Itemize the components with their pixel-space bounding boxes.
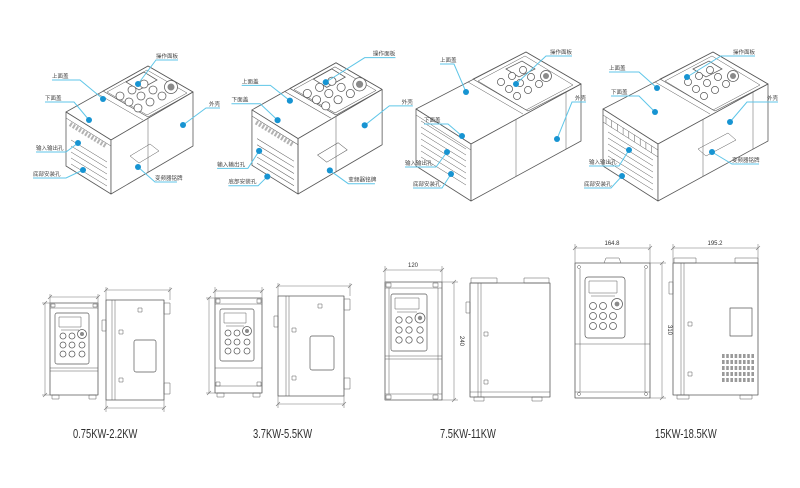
dimension-group-4: 164.8 310 195.2 bbox=[560, 232, 780, 407]
callout-label-top-cover: 上面盖 bbox=[52, 72, 69, 80]
callout-label-mount-holes: 底部安装孔 bbox=[413, 180, 441, 188]
callout-dot bbox=[75, 140, 81, 146]
callout-dot bbox=[256, 148, 262, 154]
side-view bbox=[102, 300, 170, 400]
callout-label-panel: 操作面板 bbox=[550, 48, 573, 56]
callout-dot bbox=[180, 122, 186, 128]
front-view bbox=[215, 298, 262, 397]
callout-dot bbox=[513, 81, 519, 87]
callout-dot bbox=[619, 173, 625, 179]
dimension-group-2 bbox=[198, 272, 363, 427]
callout-dot bbox=[327, 167, 333, 173]
callout-label-shell: 外壳 bbox=[767, 94, 779, 102]
callout-label-bottom-cover: 下面盖 bbox=[424, 116, 441, 124]
power-range-label-1: 0.75KW-2.2KW bbox=[73, 426, 137, 441]
callout-dot bbox=[80, 167, 86, 173]
front-view bbox=[50, 303, 98, 399]
dimension-text-front-width: 164.8 bbox=[604, 241, 620, 247]
dimension-text-front-height: 310 bbox=[666, 325, 672, 336]
isometric-view-4: 操作面板 上面盖 下面盖 外壳 变频器铭牌 输入输出孔 bbox=[583, 24, 788, 224]
callout-label-top-cover: 上面盖 bbox=[242, 77, 259, 85]
side-view bbox=[466, 278, 550, 401]
isometric-view-3: 上面盖 操作面板 下面盖 外壳 输入输出孔 底部安装孔 bbox=[396, 24, 601, 224]
device-body bbox=[603, 52, 768, 201]
callout-dot bbox=[287, 98, 293, 104]
power-range-label-4: 15KW-18.5KW bbox=[655, 426, 717, 441]
callout-dot bbox=[444, 149, 450, 155]
isometric-view-2: 操作面板 上面盖 下面盖 外壳 输入输出孔 底部安装孔 bbox=[213, 36, 418, 231]
callout-dot bbox=[684, 74, 690, 80]
callout-label-nameplate: 变频器铭牌 bbox=[348, 176, 377, 184]
callout-dot bbox=[86, 117, 92, 123]
callout-dot bbox=[135, 164, 141, 170]
callout-label-panel: 操作面板 bbox=[733, 48, 756, 56]
callout-dot bbox=[323, 79, 329, 85]
dimension-text-front-height: 240 bbox=[458, 336, 464, 347]
isometric-view-1: 操作面板 上面盖 下面盖 外壳 输入输出孔 底部安装孔 bbox=[28, 40, 228, 230]
callout-label-mount-holes: 底部安装孔 bbox=[228, 178, 257, 186]
callout-dot bbox=[264, 173, 270, 179]
callout-dot bbox=[362, 122, 368, 128]
callout-label-nameplate: 变频器铭牌 bbox=[155, 174, 183, 182]
callout-dot bbox=[727, 119, 733, 125]
page: 操作面板 上面盖 下面盖 外壳 输入输出孔 底部安装孔 bbox=[0, 0, 800, 488]
callout-label-mount-holes: 底部安装孔 bbox=[584, 180, 612, 188]
side-view-dimensions: 195.2 bbox=[671, 241, 760, 263]
callout-dot bbox=[275, 117, 281, 123]
callout-label-bottom-cover: 下面盖 bbox=[45, 94, 62, 102]
callout-dot bbox=[100, 96, 106, 102]
callout-label-bottom-cover: 下面盖 bbox=[611, 88, 628, 96]
callout-label-top-cover: 上面盖 bbox=[609, 64, 626, 72]
side-view bbox=[274, 296, 350, 396]
callout-dot bbox=[554, 136, 560, 142]
dimension-text-front-width: 120 bbox=[408, 263, 419, 269]
callout-dot bbox=[448, 171, 454, 177]
front-view bbox=[385, 282, 442, 400]
callout-label-top-cover: 上面盖 bbox=[440, 56, 457, 64]
callout-mount-holes: 底部安装孔 bbox=[228, 173, 270, 185]
callout-label-bottom-cover: 下面盖 bbox=[231, 96, 248, 104]
callout-label-io-holes: 输入输出孔 bbox=[405, 159, 433, 167]
front-view bbox=[575, 258, 650, 398]
callout-dot bbox=[463, 89, 469, 95]
callout-dot bbox=[652, 109, 658, 115]
callout-label-panel: 操作面板 bbox=[373, 50, 396, 58]
callout-label-nameplate: 变频器铭牌 bbox=[732, 156, 760, 164]
callout-dot bbox=[135, 81, 141, 87]
callout-label-io-holes: 输入输出孔 bbox=[589, 158, 617, 166]
callout-label-panel: 操作面板 bbox=[156, 52, 179, 60]
callout-dot bbox=[626, 147, 632, 153]
device-body bbox=[416, 52, 581, 201]
callout-dot bbox=[459, 133, 465, 139]
callout-dot bbox=[654, 85, 660, 91]
callout-label-io-holes: 输入输出孔 bbox=[217, 160, 246, 168]
power-range-label-2: 3.7KW-5.5KW bbox=[253, 426, 312, 441]
dimension-group-3: 120 240 bbox=[372, 252, 562, 417]
callout-label-mount-holes: 底部安装孔 bbox=[33, 170, 61, 178]
callout-label-io-holes: 输入输出孔 bbox=[36, 144, 64, 152]
callout-dot bbox=[709, 149, 715, 155]
dimension-group-1 bbox=[38, 278, 188, 428]
side-view bbox=[669, 258, 758, 399]
power-range-label-3: 7.5KW-11KW bbox=[440, 426, 496, 441]
dimension-text-side-width: 195.2 bbox=[707, 241, 723, 247]
